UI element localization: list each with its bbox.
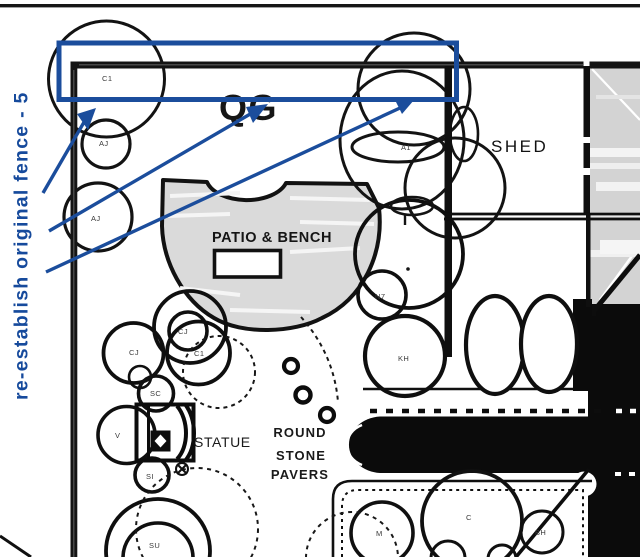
- svg-text:STONE: STONE: [276, 448, 326, 463]
- svg-text:SU: SU: [149, 541, 160, 550]
- svg-text:CJ: CJ: [129, 348, 139, 357]
- svg-text:BH: BH: [535, 528, 546, 537]
- svg-text:STATUE: STATUE: [194, 434, 251, 450]
- svg-text:N7: N7: [375, 292, 385, 301]
- svg-text:SHED: SHED: [491, 137, 548, 156]
- svg-text:M: M: [376, 529, 383, 538]
- svg-text:re-establish original fence -: re-establish original fence - 5: [11, 91, 33, 400]
- svg-text:C1: C1: [102, 74, 112, 83]
- svg-text:PAVERS: PAVERS: [271, 467, 329, 482]
- svg-text:ROUND: ROUND: [273, 425, 326, 440]
- svg-text:KH: KH: [398, 354, 409, 363]
- svg-text:C1: C1: [194, 349, 204, 358]
- svg-text:C: C: [466, 513, 472, 522]
- svg-text:AJ: AJ: [99, 139, 109, 148]
- svg-text:A1: A1: [401, 143, 411, 152]
- svg-text:V: V: [115, 431, 120, 440]
- svg-text:SC: SC: [150, 389, 161, 398]
- svg-text:CJ: CJ: [178, 327, 188, 336]
- svg-text:PATIO & BENCH: PATIO & BENCH: [212, 230, 332, 246]
- svg-text:AJ: AJ: [91, 214, 101, 223]
- svg-text:SI: SI: [146, 472, 154, 481]
